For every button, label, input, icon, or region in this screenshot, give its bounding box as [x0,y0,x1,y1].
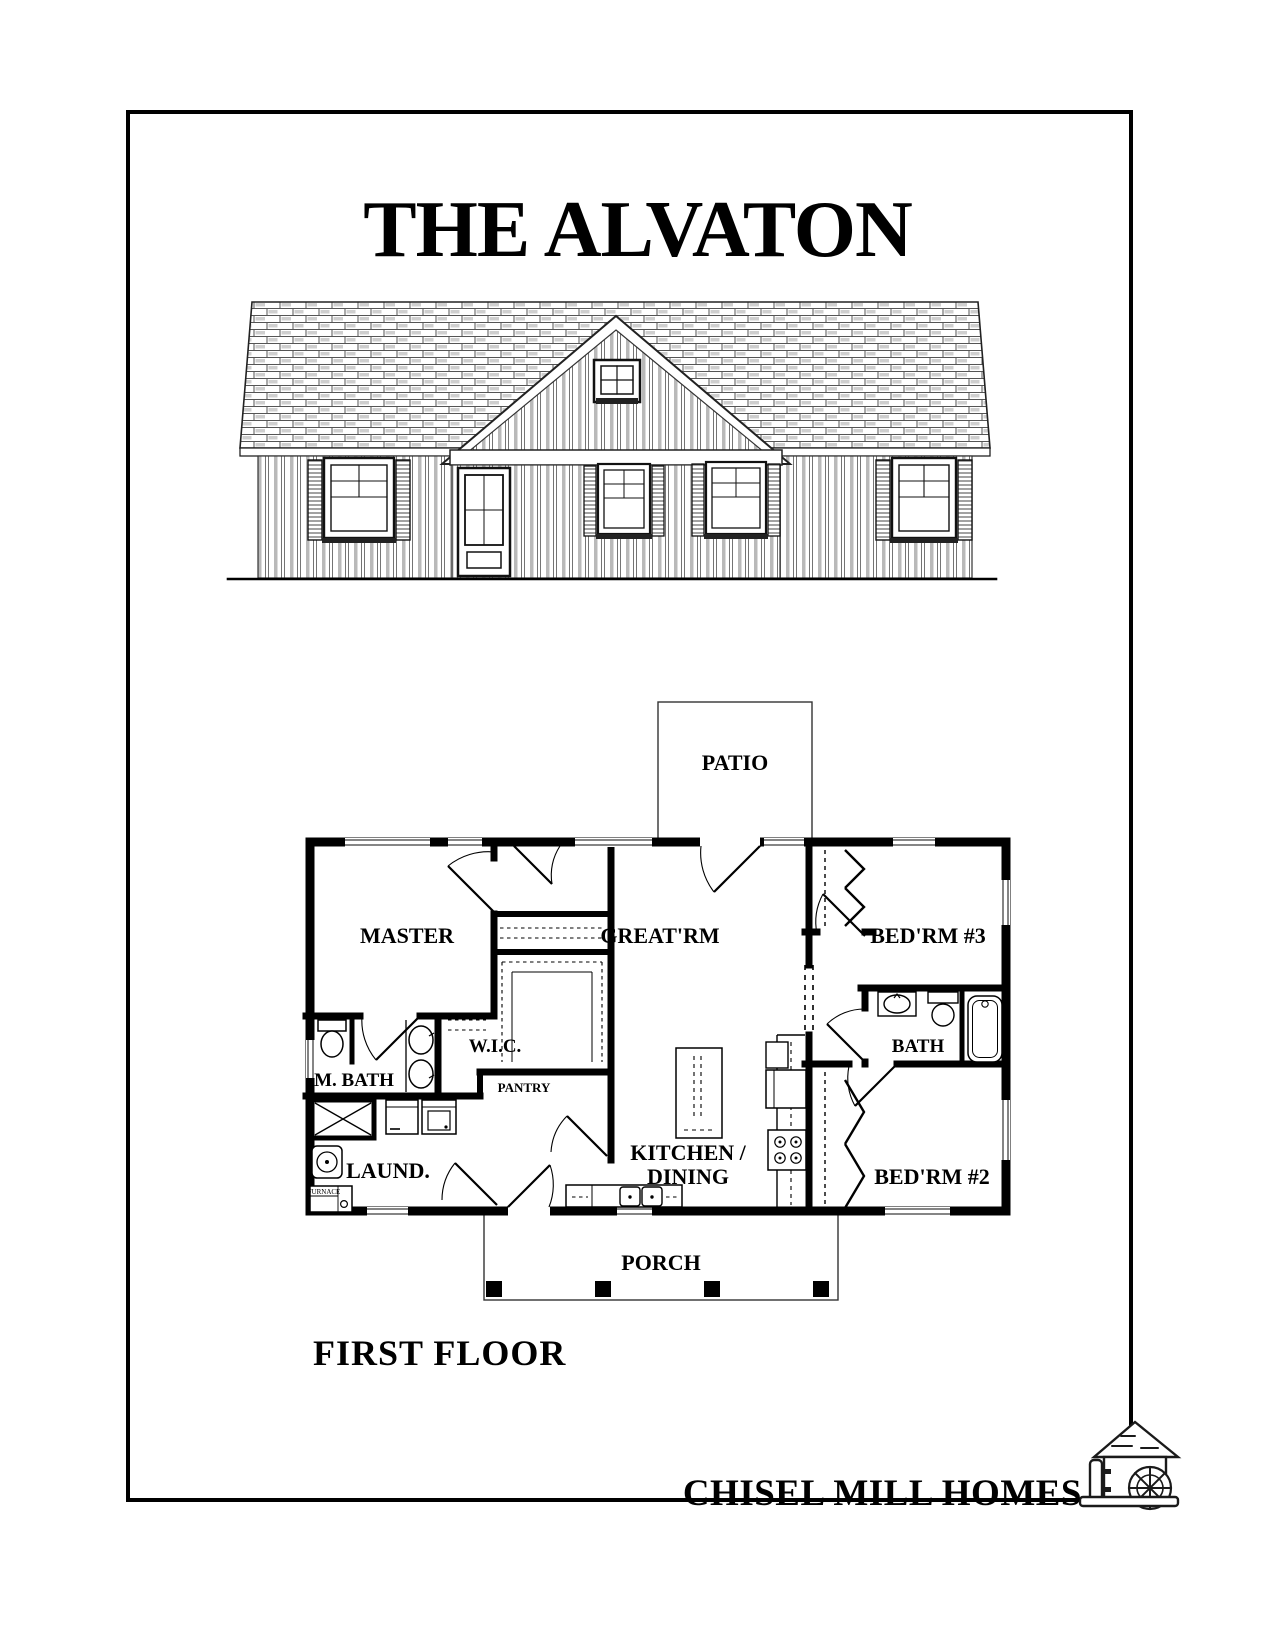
front-door-elevation [458,468,510,576]
label-laundry: LAUND. [346,1158,430,1183]
shower [312,1100,374,1138]
label-wic: W.I.C. [469,1036,522,1057]
plan-sheet: THE ALVATON [0,0,1275,1650]
logo-tab [1102,1469,1111,1474]
dryer [422,1100,456,1134]
bathtub [968,996,1002,1062]
label-pantry: PANTRY [498,1080,551,1095]
logo-tab [1102,1487,1111,1492]
logo-chisel-pillar [1090,1460,1102,1502]
porch-post [595,1281,611,1297]
laundry-sink [312,1146,342,1178]
label-bedroom2: BED'RM #2 [874,1164,990,1189]
attic-window [594,360,640,404]
builder-name: CHISEL MILL HOMES [0,1472,1082,1515]
bath-sink [878,992,916,1016]
window-far-left [308,458,410,543]
floor-level-label: FIRST FLOOR [313,1332,566,1374]
refrigerator [766,1070,806,1108]
label-master: MASTER [360,923,455,948]
label-master-bath: M. BATH [314,1070,394,1091]
elevation-drawing [228,302,996,579]
window-far-right [876,458,972,543]
label-kitchen-line2: DINING [647,1164,729,1189]
logo-roof [1094,1422,1178,1457]
label-patio: PATIO [702,750,768,775]
range-stove [768,1130,806,1170]
drawing-canvas: PATIO MASTER GREAT'RM BED'RM #3 W.I.C. M… [0,0,1275,1650]
label-bedroom3: BED'RM #3 [870,923,986,948]
porch-post [486,1281,502,1297]
logo-base [1080,1497,1178,1506]
toilet [318,1020,346,1057]
porch-post [813,1281,829,1297]
label-bath: BATH [892,1036,945,1057]
kitchen-island [676,1048,722,1138]
mill-house-logo [1080,1422,1178,1509]
window-gable [584,464,664,539]
window-center-right [692,462,780,539]
porch-post [704,1281,720,1297]
microwave-shelf [766,1042,788,1068]
label-great-room: GREAT'RM [600,923,720,948]
washer [386,1100,418,1134]
label-furnace: FURNACE [308,1188,341,1196]
label-porch: PORCH [621,1250,700,1275]
label-kitchen-line1: KITCHEN / [630,1140,746,1165]
floor-plan: PATIO MASTER GREAT'RM BED'RM #3 W.I.C. M… [306,702,1010,1300]
